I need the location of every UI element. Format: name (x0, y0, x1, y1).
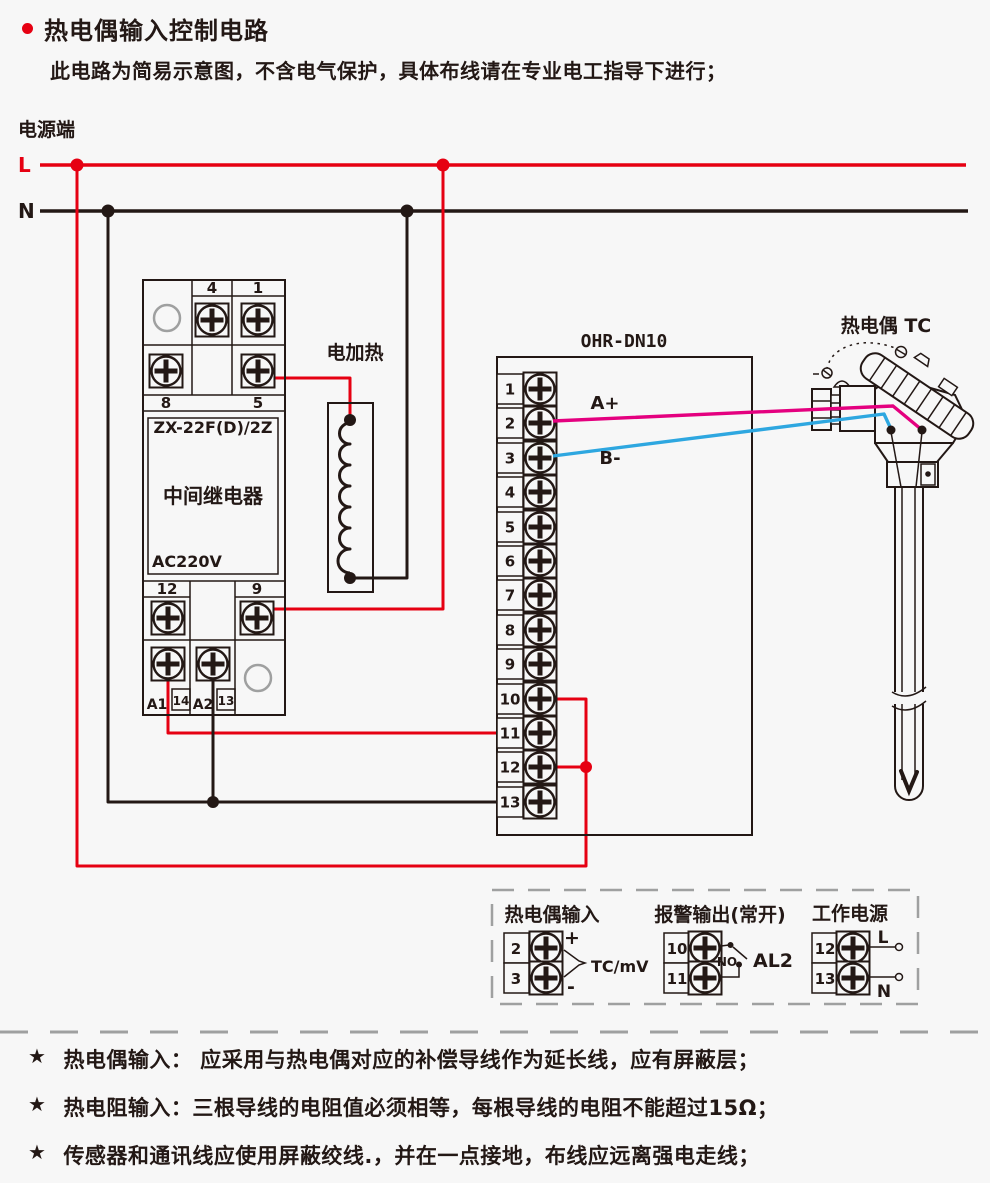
svg-text:10: 10 (667, 940, 688, 958)
footnotes: ★ 热电偶输入： 应采用与热电偶对应的补偿导线作为延长线，应有屏蔽层； ★ 热电… (28, 1044, 978, 1183)
legend-group-title: 热电偶输入 (504, 903, 599, 926)
relay-voltage: AC220V (152, 552, 223, 571)
svg-text:13: 13 (815, 970, 836, 988)
junction-dot (887, 426, 896, 435)
legend-l-label: L (878, 928, 889, 948)
controller-title: OHR-DN10 (581, 331, 668, 352)
svg-text:5: 5 (505, 519, 515, 537)
wiring-diagram-page: 热电偶输入控制电路 此电路为简易示意图，不含电气保护，具体布线请在专业电工指导下… (0, 0, 990, 1183)
junction-dot (580, 761, 592, 773)
junction-dot (344, 572, 356, 584)
legend-group-alarm-output: 报警输出(常开) 10 11 NO AL2 (654, 903, 793, 995)
brace (564, 950, 585, 977)
polarity-minus: - (567, 976, 575, 998)
relay-pin-label: 9 (252, 580, 262, 598)
svg-text:3: 3 (505, 450, 515, 468)
svg-text:7: 7 (505, 587, 515, 605)
svg-text:13: 13 (500, 794, 521, 812)
junction-dot (207, 796, 219, 808)
tube-break (892, 701, 926, 710)
relay-name: 中间继电器 (163, 484, 264, 508)
polarity-plus: + (564, 927, 580, 949)
note-text: 热电偶输入： 应采用与热电偶对应的补偿导线作为延长线，应有屏蔽层； (63, 1044, 759, 1074)
junction-dot (437, 159, 450, 172)
terminal-row: 5 (497, 511, 557, 544)
relay-pin-label: 1 (253, 279, 263, 297)
terminal-row: 12 (497, 751, 557, 784)
svg-text:1: 1 (505, 381, 515, 399)
terminal-row: 10 (497, 683, 557, 716)
note-text: 热电阻输入：三根导线的电阻值必须相等，每根导线的电阻不能超过15Ω； (63, 1092, 778, 1122)
note-item: ★ 传感器和通讯线应使用屏蔽绞线.，并在一点接地，布线应远离强电走线； (28, 1140, 978, 1170)
legend-caption: TC/mV (591, 957, 649, 976)
relay-pin-label: A1 (147, 697, 168, 713)
legend-group-title: 工作电源 (812, 902, 888, 925)
relay-pin-label: A2 (193, 697, 214, 713)
legend-n-label: N (877, 982, 891, 1002)
svg-text:4: 4 (505, 484, 515, 502)
star-icon: ★ (28, 1092, 46, 1116)
junction-dot (71, 159, 84, 172)
heater-label: 电加热 (326, 341, 383, 364)
circuit-diagram: 电源端 L N (0, 0, 990, 1183)
junction-dot (401, 205, 414, 218)
relay-pin-label: 5 (253, 394, 263, 412)
terminal-row: 7 (497, 579, 557, 612)
terminal-row: 6 (497, 545, 557, 578)
relay-pin-label: 8 (161, 394, 171, 412)
star-icon: ★ (28, 1140, 46, 1164)
terminal-row: 8 (497, 614, 557, 647)
thermocouple-label: 热电偶 TC (841, 314, 932, 337)
relay-indicator (154, 305, 180, 331)
legend-group-title: 报警输出(常开) (654, 903, 785, 926)
svg-text:6: 6 (505, 553, 515, 571)
star-icon: ★ (28, 1044, 46, 1068)
legend-caption: AL2 (753, 950, 793, 972)
power-label: 电源端 (18, 118, 75, 141)
relay-pin-label: 14 (173, 694, 190, 708)
terminal-row: 4 (497, 476, 557, 509)
svg-text:8: 8 (505, 622, 515, 640)
relay-pin-label: 12 (157, 580, 178, 598)
legend-group-tc-input: 热电偶输入 2 3 + - TC/mV (504, 903, 649, 998)
thermocouple: 热电偶 TC (812, 314, 978, 800)
svg-text:9: 9 (505, 656, 515, 674)
terminal-row: 11 (497, 717, 557, 750)
legend: 热电偶输入 2 3 + - TC/mV 报警输出(常开) 10 11 (492, 890, 918, 1004)
tube-break (892, 687, 926, 696)
junction-dot (918, 426, 927, 435)
relay: 4 1 8 5 ZX-22F(D)/2Z 中间继电器 AC220V 12 9 (143, 279, 285, 715)
heater-coil (338, 423, 350, 573)
svg-text:11: 11 (500, 725, 521, 743)
terminal-row: 2 (497, 407, 557, 440)
note-text: 传感器和通讯线应使用屏蔽绞线.，并在一点接地，布线应远离强电走线； (63, 1140, 759, 1170)
wire-a-label: A+ (590, 393, 619, 414)
relay-pin-label: 13 (218, 694, 235, 708)
svg-text:11: 11 (667, 970, 688, 988)
svg-text:12: 12 (815, 940, 836, 958)
svg-text:2: 2 (505, 415, 515, 433)
junction-v-mark (901, 771, 917, 791)
heater-outline (328, 403, 373, 592)
junction-dot (344, 414, 356, 426)
relay-indicator (245, 665, 271, 691)
svg-text:3: 3 (511, 970, 521, 988)
controller: OHR-DN10 1 2 3 4 5 6 7 8 9 10 11 12 13 (497, 331, 752, 835)
terminal-row: 3 (497, 442, 557, 475)
junction-dot (102, 205, 115, 218)
terminal-row: 1 (497, 373, 557, 406)
wire-b-label: B- (599, 448, 620, 469)
wire-segment (350, 211, 407, 578)
power-rails: 电源端 L N (18, 118, 968, 223)
svg-text:10: 10 (500, 691, 521, 709)
no-contact-label: NO (717, 955, 737, 969)
note-item: ★ 热电阻输入：三根导线的电阻值必须相等，每根导线的电阻不能超过15Ω； (28, 1092, 978, 1122)
line-n-label: N (18, 199, 35, 223)
terminal-row: 9 (497, 648, 557, 681)
svg-text:2: 2 (511, 940, 521, 958)
relay-pin-label: 4 (207, 279, 217, 297)
line-l-label: L (18, 153, 31, 177)
relay-model: ZX-22F(D)/2Z (154, 418, 273, 437)
wing-screw-icon (914, 352, 931, 367)
legend-group-power-supply: 工作电源 12 13 L N (812, 902, 903, 1002)
terminal-row: 13 (497, 786, 557, 819)
svg-text:12: 12 (500, 759, 521, 777)
note-item: ★ 热电偶输入： 应采用与热电偶对应的补偿导线作为延长线，应有屏蔽层； (28, 1044, 978, 1074)
